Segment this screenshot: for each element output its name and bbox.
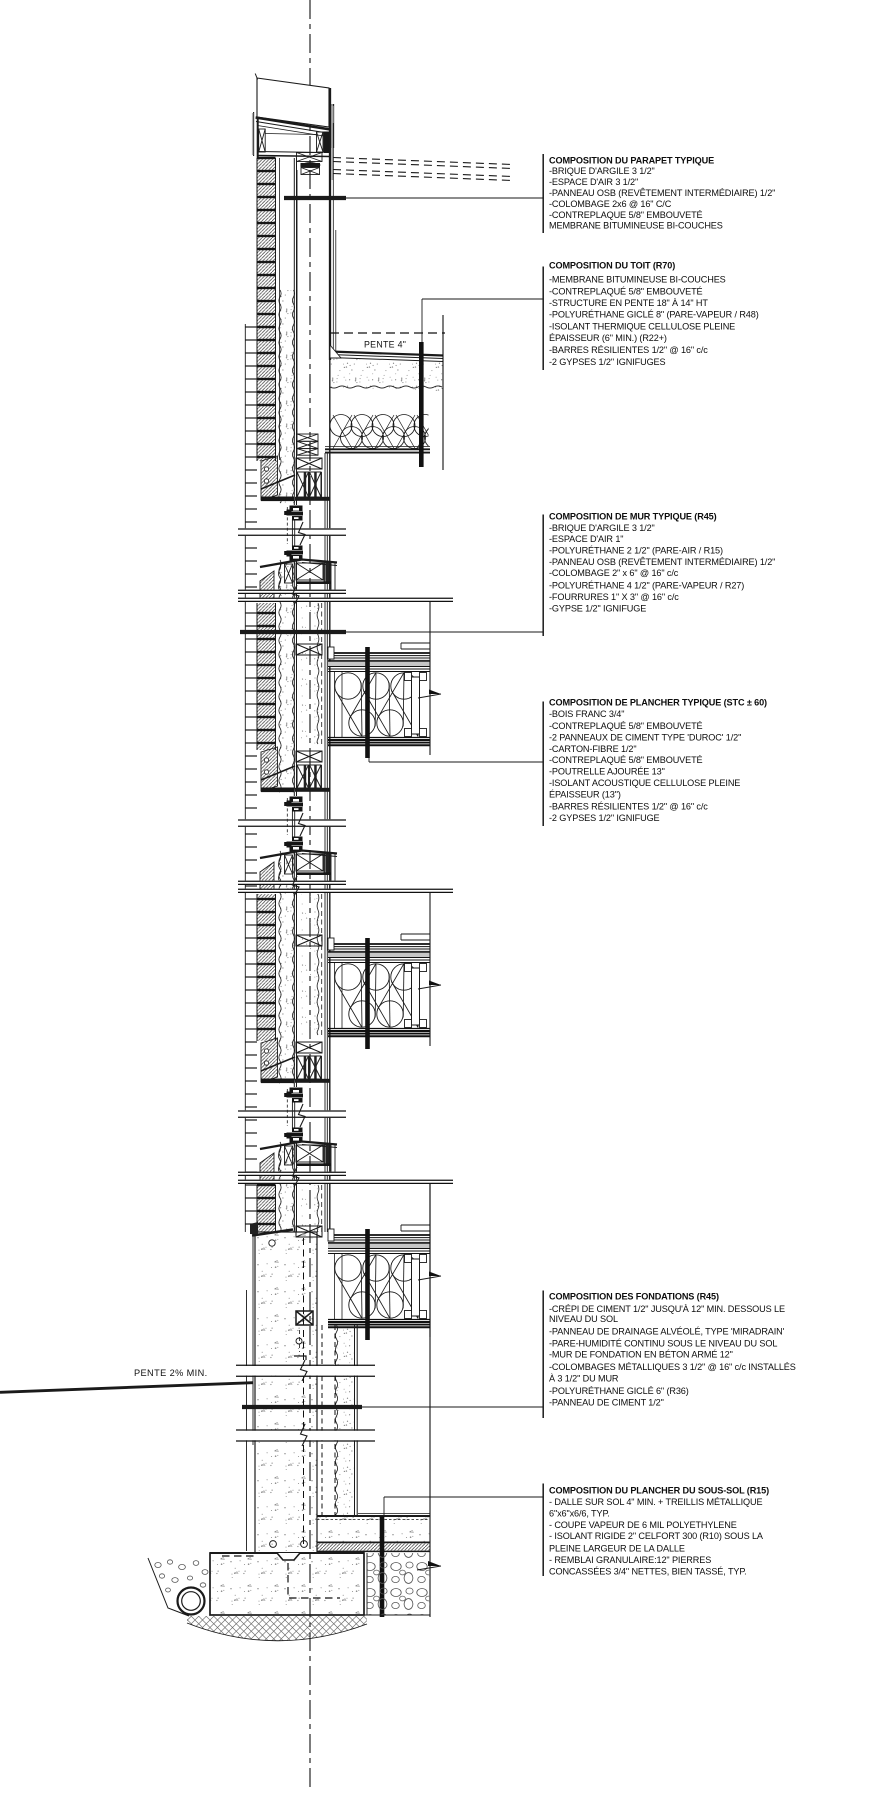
svg-text:-COLOMBAGES MÉTALLIQUES 3 1/2": -COLOMBAGES MÉTALLIQUES 3 1/2" @ 16" c/c… [549,1362,796,1372]
svg-text:-PANNEAU OSB (REVÊTEMENT INTER: -PANNEAU OSB (REVÊTEMENT INTERMÉDIAIRE) … [549,557,775,567]
svg-text:-STRUCTURE EN PENTE 18" À 14": -STRUCTURE EN PENTE 18" À 14" HT [549,298,708,308]
svg-text:PLEINE LARGEUR DE LA DALLE: PLEINE LARGEUR DE LA DALLE [549,1543,685,1553]
svg-text:-CONTREPLAQUÉ 5/8" EMBOUVETÉ: -CONTREPLAQUÉ 5/8" EMBOUVETÉ [549,755,703,765]
svg-text:-MUR DE FONDATION EN BÉTON ARM: -MUR DE FONDATION EN BÉTON ARMÉ 12" [549,1350,733,1360]
svg-text:-COLOMBAGE 2x6 @ 16" C/C: -COLOMBAGE 2x6 @ 16" C/C [549,199,672,209]
svg-text:-PANNEAU DE DRAINAGE ALVÉOLÉ,: -PANNEAU DE DRAINAGE ALVÉOLÉ, TYPE 'MIRA… [549,1326,785,1336]
svg-text:-2 GYPSES 1/2" IGNIFUGE: -2 GYPSES 1/2" IGNIFUGE [549,813,660,823]
svg-text:-ESPACE D'AIR 1": -ESPACE D'AIR 1" [549,534,623,544]
svg-text:-POLYURÉTHANE GICLÉ 8" (PARE-V: -POLYURÉTHANE GICLÉ 8" (PARE-VAPEUR / R4… [549,310,759,320]
svg-text:6"x6"x6/6, TYP.: 6"x6"x6/6, TYP. [549,1509,610,1519]
svg-text:-POLYURÉTHANE GICLÉ 6" (R36): -POLYURÉTHANE GICLÉ 6" (R36) [549,1386,689,1396]
svg-text:- COUPE VAPEUR DE 6 MIL POLYET: - COUPE VAPEUR DE 6 MIL POLYETHYLENE [549,1520,737,1530]
svg-text:-CONTREPLAQUE 5/8" EMBOUVETÉ: -CONTREPLAQUE 5/8" EMBOUVETÉ [549,210,703,220]
svg-text:-FOURRURES 1" X 3" @ 16" c/c: -FOURRURES 1" X 3" @ 16" c/c [549,592,679,602]
svg-text:À 3 1/2" DU MUR: À 3 1/2" DU MUR [549,1374,619,1384]
svg-text:-BARRES RÉSILIENTES 1/2" @ 16": -BARRES RÉSILIENTES 1/2" @ 16" c/c [549,345,708,355]
svg-text:COMPOSITION DU PLANCHER DU SOU: COMPOSITION DU PLANCHER DU SOUS-SOL (R15… [549,1485,769,1495]
svg-text:-PANNEAU OSB (REVÊTEMENT INTER: -PANNEAU OSB (REVÊTEMENT INTERMÉDIAIRE) … [549,188,775,198]
svg-text:COMPOSITION DE PLANCHER TYPIQU: COMPOSITION DE PLANCHER TYPIQUE (STC ± 6… [549,698,767,708]
svg-text:-COLOMBAGE 2" x 6" @ 16" c/c: -COLOMBAGE 2" x 6" @ 16" c/c [549,568,679,578]
svg-text:-MEMBRANE BITUMINEUSE BI-COUCH: -MEMBRANE BITUMINEUSE BI-COUCHES [549,274,726,284]
svg-text:PENTE 2% MIN.: PENTE 2% MIN. [134,1368,208,1378]
svg-text:-BARRES RÉSILIENTES 1/2" @ 16": -BARRES RÉSILIENTES 1/2" @ 16" c/c [549,801,708,811]
svg-text:COMPOSITION DES FONDATIONS (R4: COMPOSITION DES FONDATIONS (R45) [549,1291,719,1301]
svg-text:- REMBLAI GRANULAIRE:12" PIERR: - REMBLAI GRANULAIRE:12" PIERRES [549,1555,711,1565]
svg-text:-GYPSE 1/2" IGNIFUGE: -GYPSE 1/2" IGNIFUGE [549,604,646,614]
svg-text:-POLYURÉTHANE 4 1/2" (PARE-VA: -POLYURÉTHANE 4 1/2" (PARE-VAPEUR / R27) [549,580,744,590]
svg-text:PENTE 4": PENTE 4" [364,340,406,350]
svg-text:CONCASSÉES 3/4" NETTES, BIEN T: CONCASSÉES 3/4" NETTES, BIEN TASSÉ, TYP. [549,1567,747,1577]
svg-text:-POLYURÉTHANE 2 1/2" (PARE-AIR: -POLYURÉTHANE 2 1/2" (PARE-AIR / R15) [549,546,723,556]
svg-text:-2 GYPSES 1/2" IGNIFUGES: -2 GYPSES 1/2" IGNIFUGES [549,357,666,367]
svg-text:-CONTREPLAQUÉ 5/8" EMBOUVETÉ: -CONTREPLAQUÉ 5/8" EMBOUVETÉ [549,286,703,296]
svg-text:-BRIQUE D'ARGILE 3 1/2": -BRIQUE D'ARGILE 3 1/2" [549,523,655,533]
svg-text:COMPOSITION DE MUR TYPIQUE (R4: COMPOSITION DE MUR TYPIQUE (R45) [549,511,717,521]
svg-text:COMPOSITION DU PARAPET TYPIQUE: COMPOSITION DU PARAPET TYPIQUE [549,155,714,165]
svg-text:-2 PANNEAUX DE CIMENT TYPE 'D: -2 PANNEAUX DE CIMENT TYPE 'DUROC' 1/2" [549,732,741,742]
svg-text:-PANNEAU DE CIMENT 1/2": -PANNEAU DE CIMENT 1/2" [549,1398,664,1408]
svg-text:-POUTRELLE AJOURÉE 13": -POUTRELLE AJOURÉE 13" [549,767,665,777]
svg-text:-BRIQUE D'ARGILE 3 1/2": -BRIQUE D'ARGILE 3 1/2" [549,166,655,176]
svg-text:-ISOLANT ACOUSTIQUE CELLULOSE: -ISOLANT ACOUSTIQUE CELLULOSE PLEINE [549,778,740,788]
svg-text:ÉPAISSEUR (13"): ÉPAISSEUR (13") [549,790,621,800]
svg-text:-CONTREPLAQUÉ 5/8" EMBOUVETÉ: -CONTREPLAQUÉ 5/8" EMBOUVETÉ [549,721,703,731]
svg-text:-ESPACE D'AIR 3 1/2": -ESPACE D'AIR 3 1/2" [549,177,638,187]
svg-text:-ISOLANT THERMIQUE CELLULOSE P: -ISOLANT THERMIQUE CELLULOSE PLEINE [549,322,735,332]
svg-text:ÉPAISSEUR (6" MIN.) (R22+): ÉPAISSEUR (6" MIN.) (R22+) [549,333,667,343]
svg-text:-PARE-HUMIDITÉ CONTINU SOUS LE: -PARE-HUMIDITÉ CONTINU SOUS LE NIVEAU DU… [549,1339,777,1349]
svg-text:- ISOLANT RIGIDE 2" CELFORT 30: - ISOLANT RIGIDE 2" CELFORT 300 (R10) SO… [549,1531,764,1541]
svg-text:-CARTON-FIBRE 1/2": -CARTON-FIBRE 1/2" [549,744,636,754]
svg-text:MEMBRANE BITUMINEUSE BI-COUCHE: MEMBRANE BITUMINEUSE BI-COUCHES [549,221,723,231]
svg-text:-CRÉPI DE CIMENT 1/2" JUSQU'À: -CRÉPI DE CIMENT 1/2" JUSQU'À 12" MIN. D… [549,1304,785,1314]
svg-text:NIVEAU DU SOL: NIVEAU DU SOL [549,1314,618,1324]
svg-text:- DALLE SUR SOL 4" MIN. + TREI: - DALLE SUR SOL 4" MIN. + TREILLIS MÉTAL… [549,1497,762,1507]
svg-text:-BOIS FRANC 3/4": -BOIS FRANC 3/4" [549,709,624,719]
svg-text:COMPOSITION DU TOIT (R70): COMPOSITION DU TOIT (R70) [549,261,675,271]
